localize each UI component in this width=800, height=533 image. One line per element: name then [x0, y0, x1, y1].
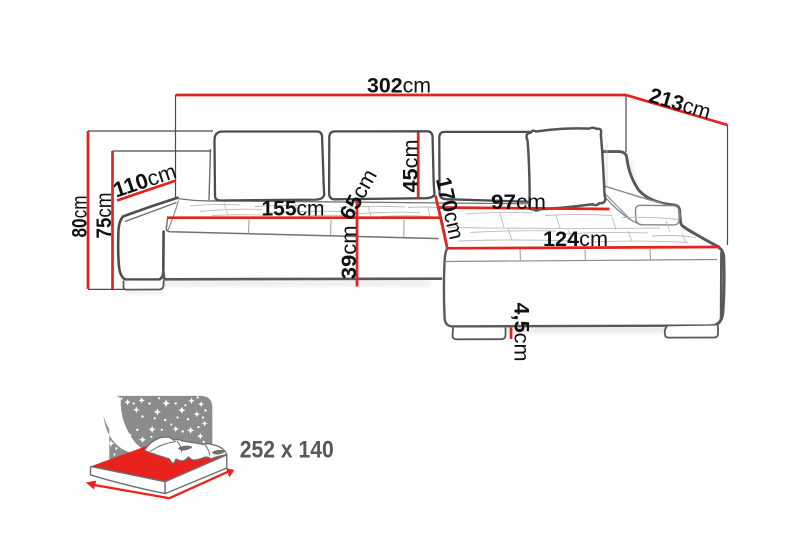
svg-text:80cm: 80cm [67, 196, 91, 238]
svg-text:252 x 140: 252 x 140 [240, 437, 334, 464]
svg-text:4,5cm: 4,5cm [510, 303, 534, 362]
svg-text:39cm: 39cm [337, 225, 361, 279]
svg-text:302cm: 302cm [367, 74, 431, 98]
svg-text:45cm: 45cm [398, 140, 422, 193]
svg-text:75cm: 75cm [92, 193, 116, 239]
svg-text:124cm: 124cm [543, 227, 608, 251]
svg-text:155cm: 155cm [262, 197, 325, 221]
svg-text:97cm: 97cm [491, 190, 546, 214]
